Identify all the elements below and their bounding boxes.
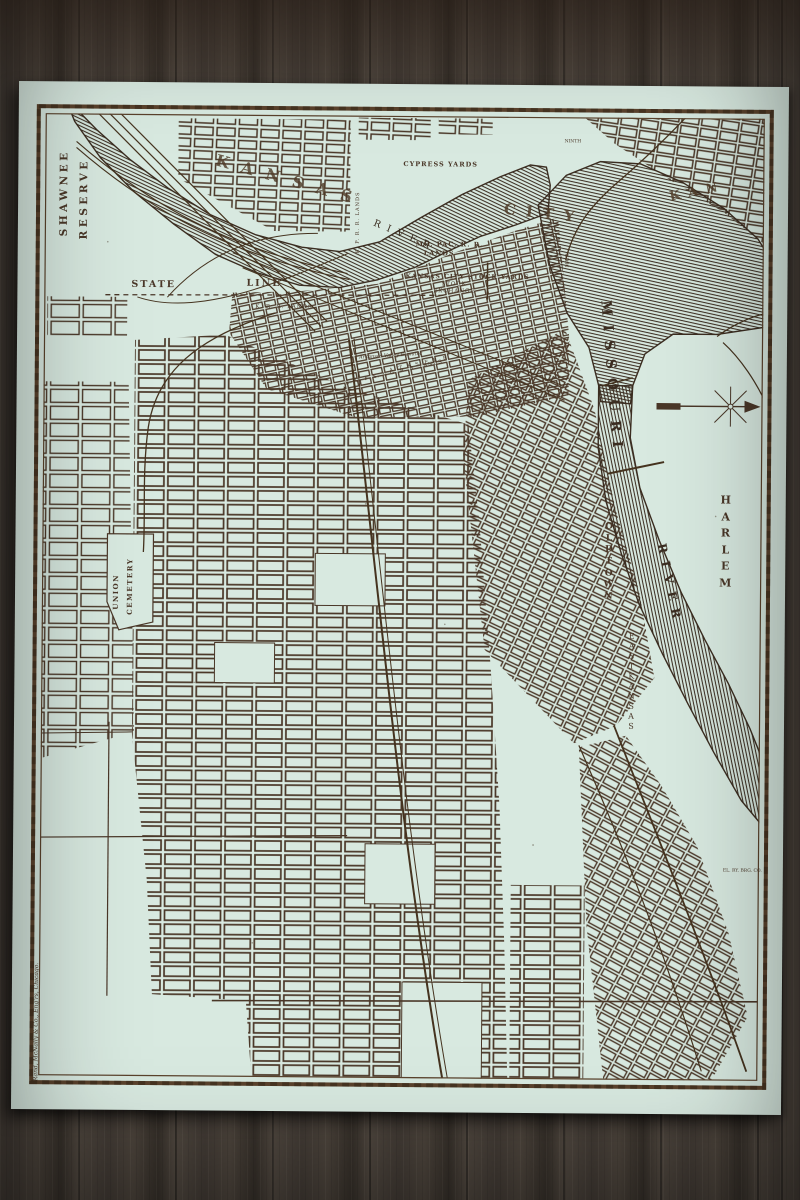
label-main-st: MAIN bbox=[566, 254, 571, 268]
label-old-town: OLD TOWN bbox=[603, 522, 615, 604]
label-exchange: EXCHANGE bbox=[433, 288, 475, 294]
label-reserve: RESERVE bbox=[78, 158, 91, 239]
label-stock-yards: KANSAS CITY STOCK YARDS bbox=[405, 273, 529, 281]
wood-tint bbox=[0, 0, 800, 90]
label-cypress-yards: CYPRESS YARDS bbox=[403, 160, 478, 169]
label-mo-pac: MO. PAC. R. R. bbox=[416, 240, 484, 249]
label-publisher-imprint: Rand, McNally & Co., Eng'rs, Chicago. bbox=[32, 963, 40, 1081]
label-stock: STOCK bbox=[441, 281, 466, 287]
label-k-rr-lands: K. R. R. LANDS bbox=[255, 304, 313, 310]
photo-of-map-print: SHAWNEE RESERVE KANSAS CITY KAN RIVER MI… bbox=[0, 0, 800, 1200]
label-ninth-st: NINTH bbox=[565, 139, 582, 144]
label-mo-pac-lands: LANDS bbox=[424, 249, 455, 257]
label-state: STATE bbox=[131, 279, 176, 290]
label-east-kansas: EAST KANSAS bbox=[626, 632, 637, 732]
map-print: SHAWNEE RESERVE KANSAS CITY KAN RIVER MI… bbox=[11, 81, 789, 1115]
label-union: UNION bbox=[111, 574, 120, 610]
label-shawnee: SHAWNEE bbox=[58, 149, 71, 236]
label-harlem: HARLEM bbox=[719, 493, 732, 592]
label-line: LINE bbox=[246, 278, 281, 289]
label-el-ry: EL. RY. BRG. CO. bbox=[723, 869, 762, 874]
label-cemetery: CEMETERY bbox=[125, 558, 134, 615]
compass-north-arrow-icon bbox=[656, 386, 760, 427]
label-kp-rr-lands: K. P. R. R. LANDS bbox=[355, 192, 361, 254]
